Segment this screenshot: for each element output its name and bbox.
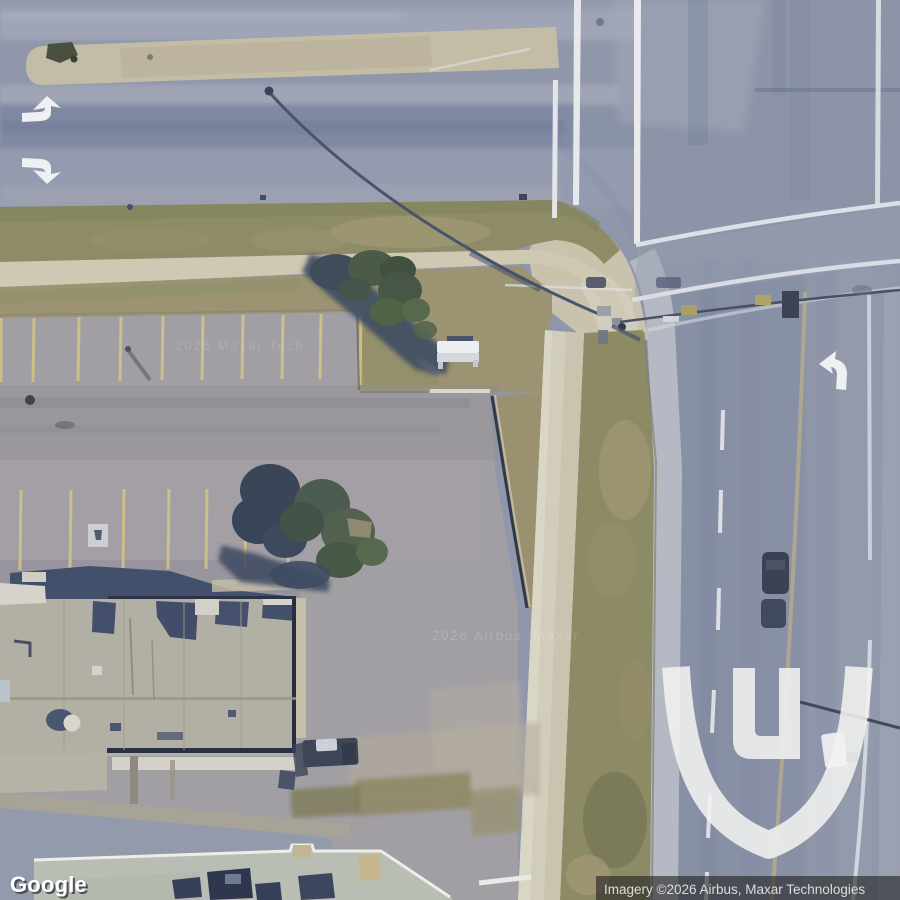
- svg-text:Imagery ©2026 Airbus, Maxar Te: Imagery ©2026 Airbus, Maxar Technologies: [604, 882, 865, 897]
- svg-text:Google: Google: [10, 872, 87, 897]
- svg-text:2026 Airbus, Maxar: 2026 Airbus, Maxar: [432, 628, 580, 643]
- svg-text:2026 Maxar Tech: 2026 Maxar Tech: [175, 338, 305, 353]
